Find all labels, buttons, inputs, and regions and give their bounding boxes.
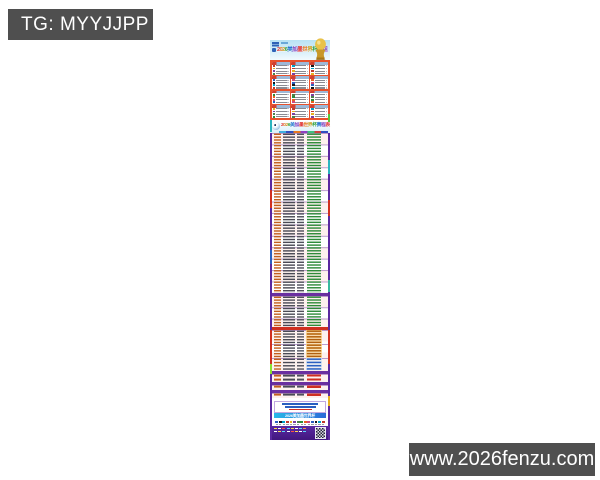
group-card [310, 91, 328, 104]
edge-accent [328, 280, 330, 292]
edge-accent [328, 160, 330, 174]
group-card [310, 105, 328, 118]
site-watermark: www.2026fenzu.com [409, 443, 595, 476]
team-flag-icon [273, 87, 276, 89]
legend-dash [303, 431, 306, 432]
flag-icon [279, 421, 282, 423]
team-row [291, 87, 309, 90]
legend-dash [287, 431, 290, 432]
team-name-text [315, 73, 325, 74]
group-card [272, 62, 290, 75]
legend-dash [291, 431, 294, 432]
flag-icon [282, 421, 285, 423]
section-quarter-finals [272, 358, 328, 371]
team-rank-text [307, 116, 309, 117]
legend-dash [287, 428, 290, 429]
group-card [291, 91, 309, 104]
flag-icon [300, 421, 303, 423]
section-final [272, 393, 328, 398]
team-flag-icon [273, 73, 276, 75]
group-card [272, 76, 290, 89]
flag-icon [311, 421, 314, 423]
legend-dash [295, 428, 298, 429]
team-flag-icon [292, 116, 295, 118]
flag-icon [275, 421, 278, 423]
team-rank-text [326, 102, 328, 103]
team-row [272, 72, 290, 75]
team-rank-text [307, 87, 309, 88]
poster-header: 2026美加墨世界杯分组 [270, 40, 330, 60]
team-rank-text [307, 73, 309, 74]
team-flag-icon [292, 87, 295, 89]
edge-accent [328, 200, 330, 216]
team-name-text [276, 102, 286, 103]
legend-dash [295, 431, 298, 432]
team-name-text [295, 116, 305, 117]
team-rank-text [307, 102, 309, 103]
notes-box [274, 401, 326, 413]
poster-title: 2026美加墨世界杯分组 [277, 47, 315, 54]
team-rank-text [287, 102, 289, 103]
team-name-text [295, 73, 305, 74]
section-round-of-32 [272, 296, 328, 327]
section-semi-finals [272, 374, 328, 382]
legend-row [274, 431, 312, 432]
team-name-text [315, 116, 325, 117]
edge-accent [270, 330, 272, 364]
title-char: 表 [325, 123, 329, 128]
edge-accent [270, 190, 272, 208]
team-name-text [315, 102, 325, 103]
flag-icon [304, 421, 307, 423]
legend-dash [282, 428, 285, 429]
legend-dash [291, 428, 294, 429]
soccer-ball-icon [272, 122, 280, 130]
group-card [291, 105, 309, 118]
group-stage-grid [270, 60, 330, 120]
edge-accent [328, 330, 330, 364]
participant-flags-row [274, 418, 326, 426]
team-flag-icon [292, 73, 295, 75]
schedule-title-banner: 2026美加墨世界杯赛程表 [270, 120, 330, 133]
qr-code [315, 427, 327, 439]
team-rank-text [287, 73, 289, 74]
footer-legend [274, 428, 312, 434]
team-row [310, 72, 328, 75]
team-flag-icon [273, 101, 276, 103]
team-row [272, 87, 290, 90]
flag-icon [293, 421, 296, 423]
team-name-text [295, 87, 305, 88]
poster-footer [272, 426, 328, 440]
legend-dash [299, 431, 302, 432]
note-line [285, 406, 316, 408]
group-card [272, 105, 290, 118]
worldcup-schedule-poster: 2026美加墨世界杯分组 2026美加墨世界杯赛程表 2026美加墨世界杯 [270, 40, 330, 440]
legend-dash [278, 428, 281, 429]
team-name-text [295, 102, 305, 103]
group-card [310, 76, 328, 89]
section-group-stage-matches [272, 133, 328, 293]
team-flag-icon [273, 116, 276, 118]
team-flag-icon [311, 87, 314, 89]
team-name-text [315, 87, 325, 88]
title-tag [272, 48, 276, 52]
team-name-text [276, 87, 286, 88]
team-row [291, 115, 309, 118]
flag-icon [286, 421, 289, 423]
note-line [289, 409, 312, 411]
team-flag-icon [311, 116, 314, 118]
flag-icon [290, 421, 293, 423]
legend-dash [274, 431, 277, 432]
legend-dash [274, 428, 277, 429]
tg-watermark: TG: MYYJJPP [8, 9, 153, 40]
team-row [310, 101, 328, 104]
schedule-title: 2026美加墨世界杯赛程表 [281, 123, 328, 129]
team-name-text [276, 116, 286, 117]
team-rank-text [326, 87, 328, 88]
flag-icon [307, 421, 310, 423]
match-rows-body [272, 133, 328, 398]
team-row [310, 87, 328, 90]
legend-dash [278, 431, 281, 432]
team-flag-icon [292, 101, 295, 103]
legend-dash [282, 431, 285, 432]
group-card [291, 76, 309, 89]
team-flag-icon [311, 73, 314, 75]
edge-accent [328, 114, 330, 122]
team-row [291, 72, 309, 75]
flag-icon [318, 421, 321, 423]
team-row [272, 101, 290, 104]
group-card [310, 62, 328, 75]
edge-accent [270, 120, 272, 132]
group-card [272, 91, 290, 104]
edge-accent [270, 364, 272, 374]
team-rank-text [326, 73, 328, 74]
edge-accent [270, 250, 272, 264]
legend-dash [303, 428, 306, 429]
team-rank-text [287, 87, 289, 88]
flag-icon [322, 421, 325, 423]
team-row [291, 101, 309, 104]
flag-icon [297, 421, 300, 423]
section-round-of-16 [272, 330, 328, 358]
fifa-logo-mark [272, 42, 279, 44]
team-row [272, 115, 290, 118]
team-flag-icon [311, 101, 314, 103]
poster-lower: 2026美加墨世界杯 [270, 133, 330, 440]
flag-icon [315, 421, 318, 423]
legend-dash [299, 428, 302, 429]
group-card [291, 62, 309, 75]
team-row [310, 115, 328, 118]
edge-accent [328, 396, 330, 406]
team-name-text [276, 73, 286, 74]
team-rank-text [287, 116, 289, 117]
legend-row [274, 428, 312, 429]
note-line [282, 403, 318, 405]
